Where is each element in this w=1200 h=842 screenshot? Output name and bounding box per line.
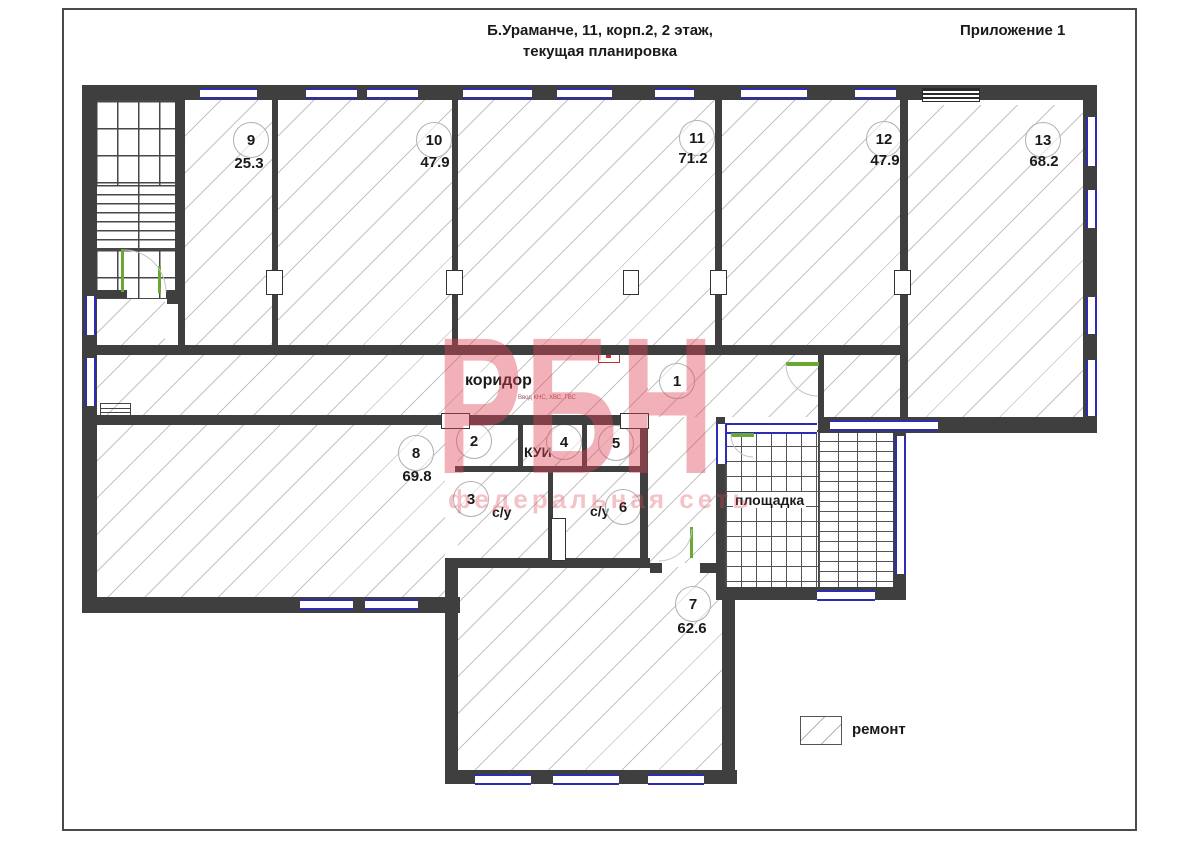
room-9-area-label: 25.3 — [234, 155, 263, 172]
window — [463, 88, 532, 99]
legend-repair-swatch — [800, 716, 842, 745]
column-symbol — [623, 270, 639, 295]
door-leaf — [158, 266, 161, 293]
window — [306, 88, 357, 99]
window — [1086, 117, 1097, 166]
wall-segment — [518, 425, 523, 468]
room-8-number: 8 — [398, 435, 434, 471]
room-8-area-label: 69.8 — [402, 468, 431, 485]
floor-plan: Б.Ураманче, 11, корп.2, 2 этаж, текущая … — [0, 0, 1200, 842]
stairwell-right-stairs — [818, 430, 895, 590]
window — [855, 88, 896, 99]
floorplan-sheet: { "header": { "title_line1": "Б.Ураманче… — [0, 0, 1200, 842]
pilaster — [441, 413, 470, 429]
wall-segment — [722, 593, 735, 782]
window — [1086, 190, 1097, 228]
wall-segment — [700, 563, 724, 573]
pilaster — [266, 270, 283, 295]
wall-segment — [175, 100, 185, 297]
window-dark — [922, 88, 980, 102]
pilaster — [710, 270, 727, 295]
window — [553, 774, 619, 785]
wall-segment — [445, 558, 650, 568]
stairwell-left-landing — [95, 100, 185, 189]
utility-note: Ввод КНС, ХВС, ГВС — [518, 395, 576, 401]
room-9-number: 9 — [233, 122, 269, 158]
window — [1086, 297, 1097, 334]
window — [1086, 360, 1097, 416]
corridor-area — [97, 352, 648, 415]
room-11-area-label: 71.2 — [678, 150, 707, 167]
landing-ploshchadka — [725, 430, 820, 590]
window — [85, 296, 96, 335]
corridor-left-area — [97, 297, 165, 352]
door-leaf — [786, 362, 819, 366]
room-8-area — [97, 425, 445, 597]
unit-6-number: 6 — [605, 489, 641, 525]
corridor-label: коридор — [463, 372, 534, 390]
window — [365, 599, 418, 610]
pilaster — [551, 518, 566, 561]
pilaster — [620, 413, 649, 429]
pilaster — [894, 270, 911, 295]
window — [741, 88, 807, 99]
wall-segment — [715, 100, 722, 345]
window — [85, 358, 96, 406]
wall-segment — [90, 345, 905, 355]
wall-segment — [90, 415, 648, 425]
room-13-area-label: 68.2 — [1029, 153, 1058, 170]
window — [557, 88, 612, 99]
room-10-number: 10 — [416, 122, 452, 158]
unit-4-number: 4 — [546, 424, 582, 460]
vestibule-area — [824, 355, 900, 417]
window — [830, 420, 938, 431]
landing-label: площадка — [733, 492, 806, 508]
room-11-area — [458, 100, 715, 348]
hall-1-lower-area — [648, 417, 716, 563]
stairwell-left-stairs — [95, 185, 185, 251]
unit-1-number: 1 — [659, 363, 695, 399]
plan-title: Б.Ураманче, 11, корп.2, 2 этаж, текущая … — [390, 20, 810, 62]
pilaster — [446, 270, 463, 295]
wall-segment — [900, 100, 908, 425]
window — [817, 590, 875, 601]
annex-label: Приложение 1 — [960, 22, 1065, 39]
window — [895, 436, 906, 574]
door-leaf — [731, 433, 754, 437]
window — [655, 88, 694, 99]
title-line1: Б.Ураманче, 11, корп.2, 2 этаж, — [390, 20, 810, 41]
window — [300, 599, 353, 610]
room-10-area-label: 47.9 — [420, 154, 449, 171]
room-12-area-label: 47.9 — [870, 152, 899, 169]
window — [648, 774, 704, 785]
wall-segment — [640, 415, 648, 568]
wc-left-label: с/у — [492, 504, 511, 520]
title-line2: текущая планировка — [390, 41, 810, 62]
window — [716, 424, 727, 464]
wall-segment — [582, 425, 587, 468]
window — [367, 88, 418, 99]
window — [475, 774, 531, 785]
wall-segment — [272, 100, 278, 345]
legend-repair-label: ремонт — [852, 721, 906, 738]
wall-segment — [650, 563, 662, 573]
unit-3-number: 3 — [453, 481, 489, 517]
room-7-area-label: 62.6 — [677, 620, 706, 637]
room-7-number: 7 — [675, 586, 711, 622]
wall-segment — [452, 100, 458, 345]
wall-segment — [445, 563, 458, 782]
wall-segment — [178, 297, 185, 352]
unit-5-number: 5 — [598, 425, 634, 461]
window — [200, 88, 257, 99]
door-leaf — [690, 527, 693, 558]
door-leaf — [121, 249, 124, 292]
wall-segment — [716, 587, 906, 600]
